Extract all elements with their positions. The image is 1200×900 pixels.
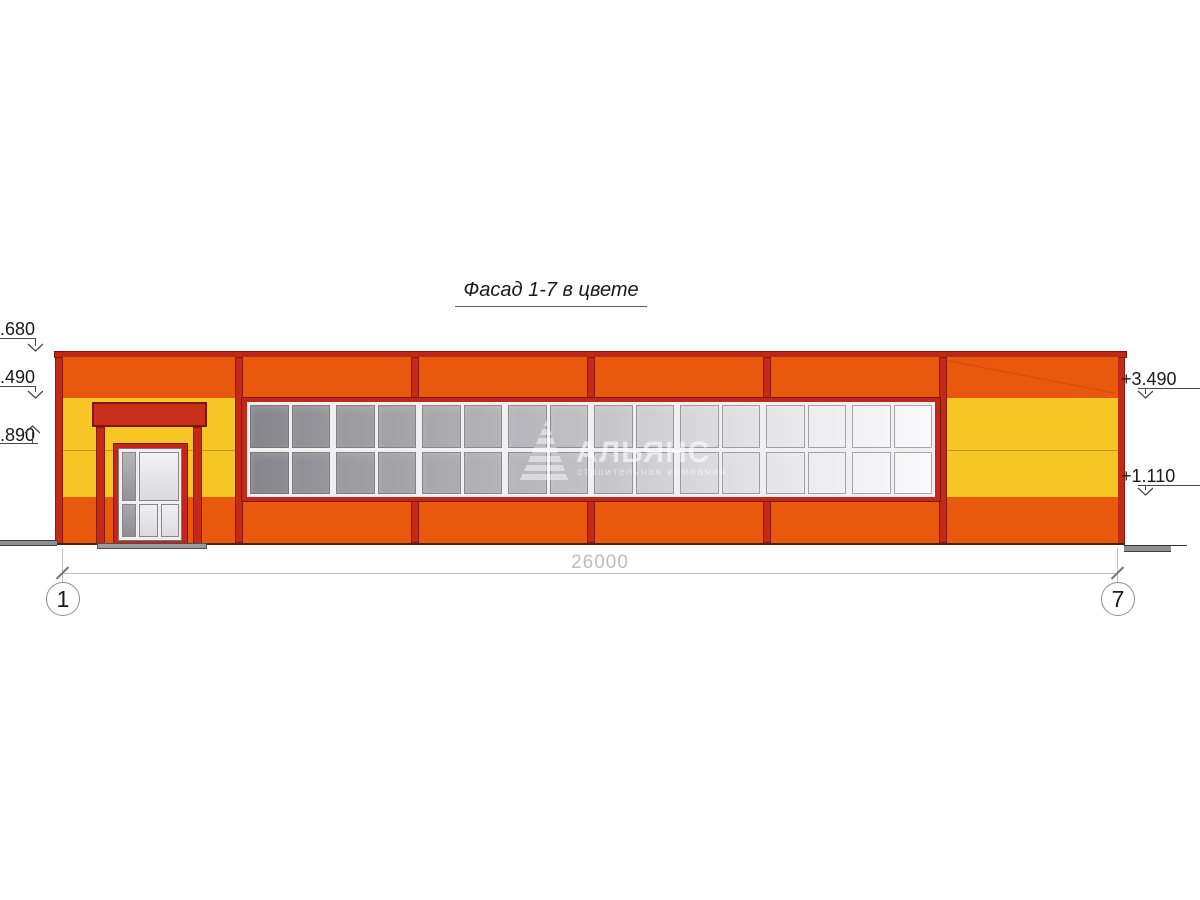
- window-pane-column: [336, 405, 378, 494]
- window-pane-column: [378, 405, 423, 494]
- elevation-arrow-icon: [24, 425, 40, 434]
- window-pane: [894, 452, 933, 495]
- axis-marker-7: 7: [1101, 582, 1135, 616]
- window-pane: [422, 452, 461, 495]
- window-pane: [808, 452, 847, 495]
- window-pane-column: [422, 405, 464, 494]
- entrance-threshold: [97, 543, 207, 549]
- window-pane: [292, 405, 331, 452]
- elevation-leader-line: [1138, 388, 1200, 389]
- elevation-leader-line: [0, 443, 38, 444]
- window-pane: [766, 405, 805, 452]
- window-pane: [250, 405, 289, 452]
- elevation-label: +4.680: [0, 319, 35, 340]
- elevation-leader-line: [1138, 485, 1200, 486]
- ground-line-left: [0, 540, 57, 546]
- window-pane-column: [894, 405, 933, 494]
- window-pane: [378, 405, 417, 452]
- window-pane: [808, 405, 847, 452]
- window-pane-column: [250, 405, 292, 494]
- door-glass-pane: [161, 504, 179, 537]
- window-pane: [292, 452, 331, 495]
- window-glazing: [247, 402, 935, 497]
- elevation-label: +3.490: [1121, 369, 1200, 390]
- window-pane-column: [808, 405, 853, 494]
- window-pane-column: [292, 405, 337, 494]
- drawing-title: Фасад 1-7 в цвете: [455, 279, 647, 307]
- elevation-arrow-icon: [1137, 390, 1153, 399]
- window-pane: [508, 405, 547, 452]
- ground-pad-right: [1124, 546, 1171, 552]
- window-pane: [422, 405, 461, 452]
- panel-joint-line: [947, 450, 1118, 451]
- window-pane-column: [852, 405, 894, 494]
- window-pane: [636, 452, 675, 495]
- elevation-leader-line: [0, 386, 36, 387]
- window-pane: [680, 452, 719, 495]
- window-pane: [336, 452, 375, 495]
- window-pane-column: [766, 405, 808, 494]
- door-glass-pane: [122, 504, 136, 537]
- facade-base-line: [56, 543, 1125, 545]
- extension-line: [62, 549, 63, 584]
- window-pane-column: [636, 405, 681, 494]
- window-pane-column: [722, 405, 767, 494]
- elevation-label: +1.110: [1121, 466, 1200, 487]
- window-pane: [336, 405, 375, 452]
- door-glass-pane: [139, 504, 158, 537]
- elevation-label: +3.490: [0, 367, 35, 388]
- entrance-door: [118, 448, 182, 541]
- window-pane: [378, 452, 417, 495]
- window-pane-column: [594, 405, 636, 494]
- axis-marker-1: 1: [46, 582, 80, 616]
- window-pane: [766, 452, 805, 495]
- window-pane: [852, 452, 891, 495]
- window-pane: [250, 452, 289, 495]
- window-pane-column: [508, 405, 550, 494]
- elevation-leader-line: [0, 338, 36, 339]
- window-pane: [680, 405, 719, 452]
- window-pane: [852, 405, 891, 452]
- window-pane: [508, 452, 547, 495]
- corner-pilaster-left: [55, 357, 63, 544]
- window-pane-column: [550, 405, 595, 494]
- elevation-arrow-icon: [27, 390, 43, 399]
- window-pane: [464, 405, 503, 452]
- window-pane-column: [680, 405, 722, 494]
- door-glass-pane: [139, 452, 179, 501]
- canopy-post-left: [96, 427, 105, 544]
- extension-line: [1117, 548, 1118, 584]
- elevation-arrow-icon: [27, 343, 43, 352]
- window-pane: [722, 405, 761, 452]
- window-pane: [722, 452, 761, 495]
- window-pane: [894, 405, 933, 452]
- dimension-label: 26000: [540, 552, 660, 574]
- window-pane: [594, 405, 633, 452]
- window-pane-column: [464, 405, 509, 494]
- canopy-post-right: [193, 427, 202, 544]
- window-pane: [550, 405, 589, 452]
- window-strip: АЛЬЯНС строительная компания: [241, 397, 941, 502]
- window-pane: [464, 452, 503, 495]
- window-pane: [636, 405, 675, 452]
- window-pane: [550, 452, 589, 495]
- elevation-arrow-icon: [1137, 487, 1153, 496]
- door-glass-pane: [122, 452, 136, 501]
- entrance-canopy: [92, 402, 207, 427]
- drawing-canvas: Фасад 1-7 в цвете АЛЬЯНС строительная ко…: [0, 0, 1200, 900]
- window-pane: [594, 452, 633, 495]
